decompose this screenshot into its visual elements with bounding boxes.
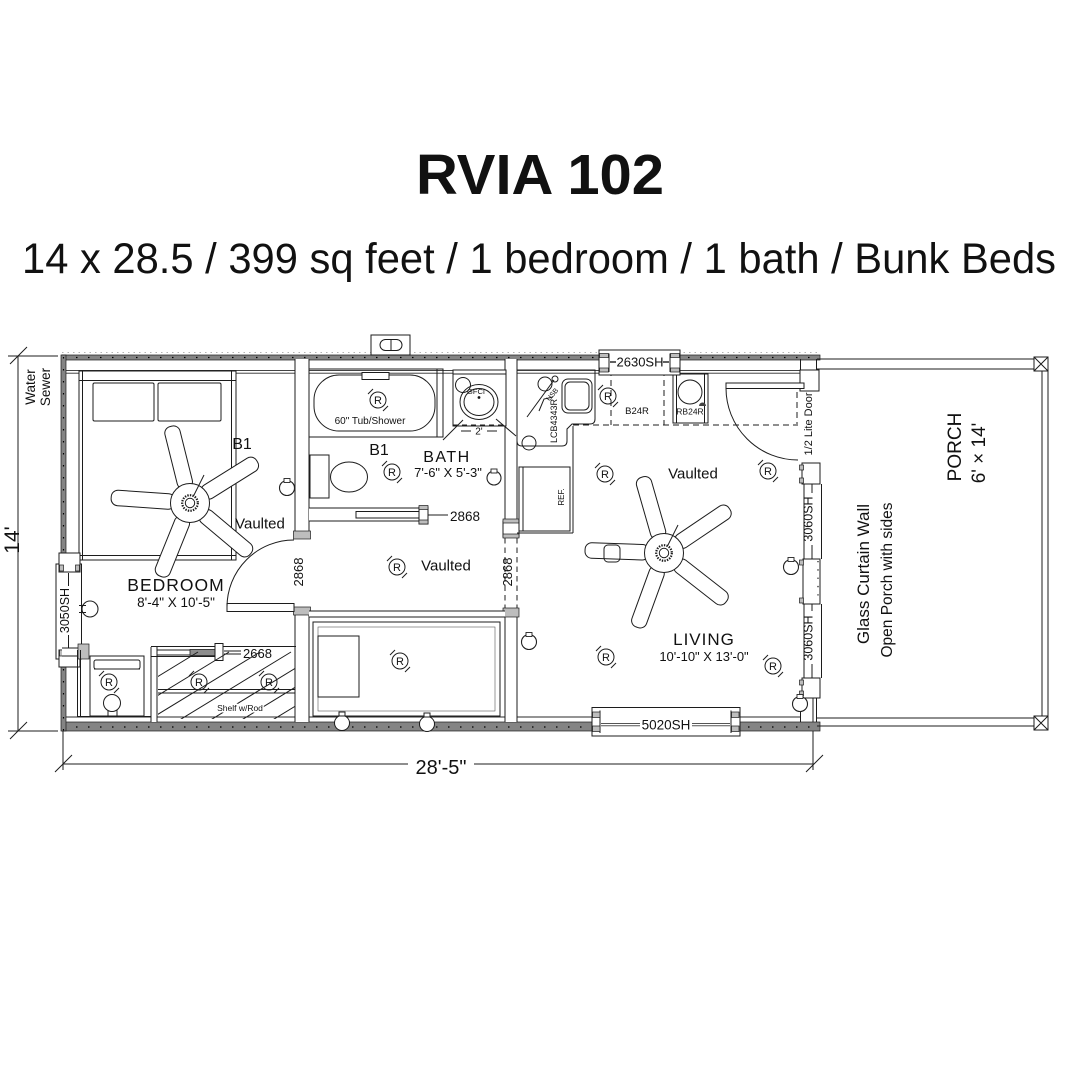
svg-text:Shelf w/Rod: Shelf w/Rod — [217, 703, 263, 713]
svg-text:R: R — [769, 661, 777, 673]
svg-text:R: R — [374, 395, 382, 407]
svg-text:R: R — [604, 391, 612, 403]
svg-text:14 x 28.5 / 399 sq feet / 1 be: 14 x 28.5 / 399 sq feet / 1 bedroom / 1 … — [22, 235, 1056, 283]
svg-text:R: R — [764, 466, 772, 478]
svg-text:2': 2' — [475, 427, 483, 438]
svg-text:10'-10" X 13'-0": 10'-10" X 13'-0" — [659, 649, 749, 664]
svg-text:8'-4" X 10'-5": 8'-4" X 10'-5" — [137, 595, 215, 610]
svg-text:BATH: BATH — [423, 449, 470, 466]
svg-text:Sewer: Sewer — [38, 367, 53, 406]
svg-text:7'-6" X 5'-3": 7'-6" X 5'-3" — [414, 465, 482, 480]
svg-text:3060SH: 3060SH — [802, 496, 816, 541]
svg-text:Open Porch with sides: Open Porch with sides — [879, 502, 896, 657]
svg-text:Water: Water — [23, 369, 38, 405]
svg-text:R: R — [602, 652, 610, 664]
svg-text:28'-5": 28'-5" — [416, 757, 467, 779]
svg-text:Vaulted: Vaulted — [235, 516, 285, 533]
svg-text:R: R — [396, 656, 404, 668]
svg-text:R: R — [601, 469, 609, 481]
svg-text:BEDROOM: BEDROOM — [127, 575, 224, 595]
svg-text:Vaulted: Vaulted — [421, 558, 471, 575]
svg-text:B1: B1 — [232, 436, 252, 453]
svg-text:14': 14' — [1, 526, 24, 553]
svg-text:REF.: REF. — [557, 488, 566, 505]
svg-text:R: R — [393, 562, 401, 574]
svg-text:PORCH: PORCH — [945, 413, 966, 482]
svg-text:B24R: B24R — [625, 406, 649, 417]
svg-text:RVIA 102: RVIA 102 — [416, 143, 664, 207]
svg-text:6' × 14': 6' × 14' — [969, 423, 990, 484]
svg-text:3050SH: 3050SH — [58, 588, 72, 633]
svg-text:LCB4343R: LCB4343R — [549, 398, 559, 443]
svg-text:R: R — [195, 677, 203, 689]
svg-text:R: R — [105, 677, 113, 689]
svg-text:GFCI: GFCI — [467, 387, 485, 396]
svg-text:B1: B1 — [369, 442, 389, 459]
svg-text:2868: 2868 — [291, 558, 306, 587]
svg-text:3060SH: 3060SH — [802, 615, 816, 660]
svg-text:2868: 2868 — [500, 558, 515, 587]
svg-text:Glass Curtain Wall: Glass Curtain Wall — [854, 504, 873, 644]
svg-text:60" Tub/Shower: 60" Tub/Shower — [335, 416, 406, 427]
svg-text:5020SH: 5020SH — [642, 718, 691, 733]
svg-text:2868: 2868 — [450, 509, 480, 524]
svg-text:2630SH: 2630SH — [617, 355, 664, 370]
svg-text:1/2 Lite Door: 1/2 Lite Door — [803, 392, 815, 455]
svg-text:LIVING: LIVING — [673, 630, 735, 649]
svg-text:R: R — [388, 467, 396, 479]
svg-text:RB24R: RB24R — [676, 407, 703, 417]
svg-text:R: R — [265, 677, 273, 689]
svg-text:Vaulted: Vaulted — [668, 466, 718, 483]
